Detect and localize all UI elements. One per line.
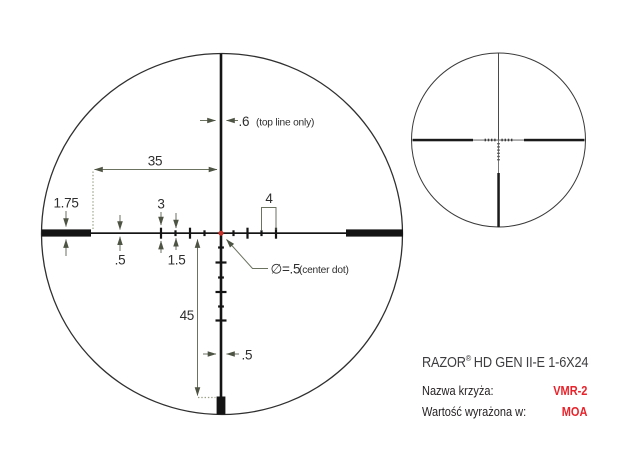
dim-175-label: 1.75: [53, 196, 78, 211]
units-value: MOA: [562, 405, 588, 420]
small-bottom-post-bar: [497, 173, 500, 227]
product-info-panel: RAZOR®HD GEN II-E 1-6X24 Nazwa krzyża: V…: [422, 353, 587, 420]
center-dot-label: ∅=.5: [271, 262, 301, 277]
dim-05-left-label: .5: [115, 253, 126, 268]
bottom-vertical-line: [220, 234, 223, 397]
dim-center-dot-callout: ∅=.5 (center dot): [227, 240, 349, 277]
dim-35-label: 35: [148, 154, 162, 169]
dim-45-label: 45: [180, 308, 194, 323]
center-dot-note: (center dot): [299, 265, 349, 276]
center-dot: [219, 231, 224, 236]
top-vertical-line: [220, 54, 223, 234]
reticle-name-value: VMR-2: [553, 384, 587, 399]
detail-reticle-view: .6 (top line only) 35 1.75 .5: [42, 54, 404, 415]
dim-175-post-thickness: 1.75: [53, 196, 78, 257]
dim-3-label: 3: [157, 197, 164, 212]
dim-4-label: 4: [265, 191, 273, 206]
product-model: HD GEN II-E 1-6X24: [474, 355, 589, 371]
small-left-post-bar: [413, 139, 474, 142]
dim-05-line-thickness: .5: [115, 215, 126, 268]
dim-4-hash-spacing: 4: [262, 191, 277, 230]
true-scale-reticle-view: [412, 53, 586, 227]
bottom-post-bar: [217, 397, 226, 415]
left-post-bar: [42, 229, 92, 236]
center-dot-leader-line: [227, 240, 269, 269]
reticle-subtension-diagram: .6 (top line only) 35 1.75 .5: [0, 0, 628, 471]
dim-4-bracket: [262, 208, 277, 231]
reticle-name-row: Nazwa krzyża: VMR-2: [422, 384, 587, 399]
dim-06-label: .6: [239, 114, 250, 129]
small-right-post-bar: [524, 139, 585, 142]
dim-3-hash-height: 3: [157, 197, 164, 254]
product-title: RAZOR®HD GEN II-E 1-6X24: [422, 353, 587, 371]
dim-15-label: 1.5: [168, 253, 186, 268]
dim-05-bottom-label: .5: [242, 348, 253, 363]
units-label: Wartość wyrażona w:: [422, 405, 526, 420]
reticle-name-label: Nazwa krzyża:: [422, 384, 494, 399]
product-brand: RAZOR: [422, 355, 466, 371]
units-row: Wartość wyrażona w: MOA: [422, 405, 587, 420]
dim-top-line-width: .6 (top line only): [200, 114, 314, 129]
dim-05-bottom-line-width: .5: [203, 348, 252, 363]
dim-35-horizontal: 35: [93, 154, 217, 231]
registered-trademark-icon: ®: [466, 353, 471, 363]
small-top-vertical-line: [498, 54, 499, 141]
dim-06-note: (top line only): [256, 118, 314, 129]
right-post-bar: [346, 229, 403, 236]
dim-15-hash-height: 1.5: [168, 213, 186, 268]
